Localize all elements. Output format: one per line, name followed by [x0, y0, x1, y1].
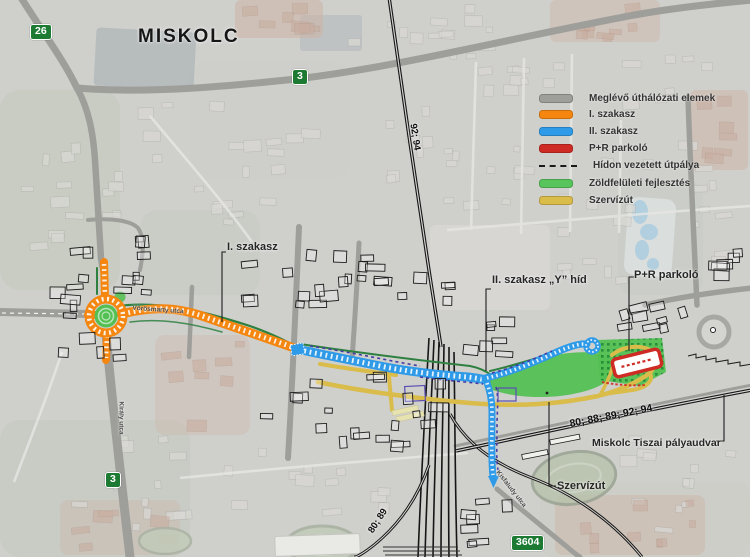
callout-service: Szervízút	[557, 480, 605, 492]
legend: Meglévő úthálózati elemek I. szakasz II.…	[539, 90, 715, 209]
legend-item-bridge: Hídon vezetett útpálya	[539, 156, 715, 175]
legend-swatch-service	[539, 196, 573, 205]
legend-item-pr: P+R parkoló	[539, 140, 715, 157]
route-badge-3-left: 3	[105, 472, 121, 488]
legend-item-service: Szervízút	[539, 192, 715, 209]
legend-swatch-green	[539, 179, 573, 188]
map-title: MISKOLC	[138, 26, 240, 48]
legend-swatch-phase1	[539, 110, 573, 119]
route-badge-3604: 3604	[511, 535, 544, 551]
callout-pr: P+R parkoló	[634, 269, 699, 281]
legend-swatch-existing	[539, 94, 573, 103]
callout-phase1: I. szakasz	[227, 241, 278, 253]
legend-item-phase1: I. szakasz	[539, 107, 715, 124]
map-stage: MISKOLC 26 3 3 3604 Meglévő úthálózati e…	[0, 0, 750, 557]
legend-swatch-phase2	[539, 127, 573, 136]
callout-station: Miskolc Tiszai pályaudvar	[592, 437, 721, 449]
route-badge-26: 26	[30, 24, 52, 40]
street-label-kiraly: Király utca	[118, 401, 125, 434]
legend-item-existing: Meglévő úthálózati elemek	[539, 90, 715, 107]
legend-swatch-bridge	[539, 165, 577, 167]
route-badge-3-top: 3	[292, 69, 308, 85]
callout-phase2: II. szakasz „Y” híd	[492, 274, 587, 286]
legend-item-green: Zöldfelületi fejlesztés	[539, 175, 715, 192]
legend-item-phase2: II. szakasz	[539, 123, 715, 140]
legend-swatch-pr	[539, 144, 573, 153]
